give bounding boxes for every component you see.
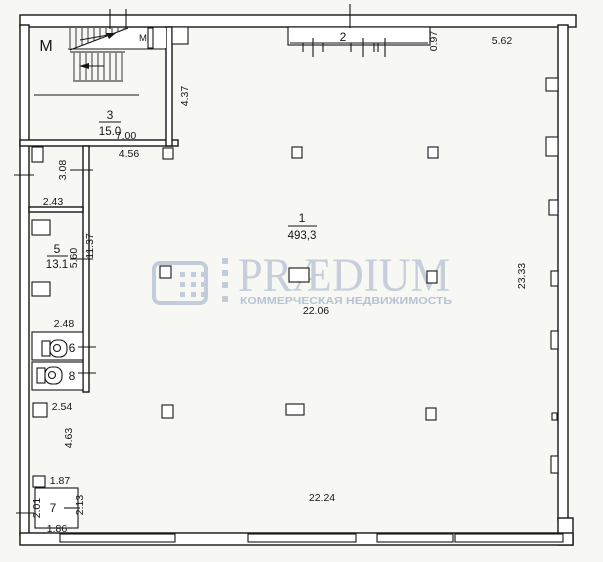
zone-2-strip: 2	[288, 27, 430, 57]
stair-label-m-small: M	[139, 33, 147, 44]
column-marker	[292, 147, 302, 158]
dim-0-97: 0.97	[428, 31, 440, 52]
watermark-tagline-bullet	[222, 296, 228, 302]
room-1-number: 1	[299, 211, 306, 225]
landing-divider	[148, 28, 153, 48]
window-segment	[377, 534, 453, 542]
bottom-windows	[60, 534, 563, 542]
dim-22-06: 22.06	[303, 305, 329, 317]
dim-5-60: 5.60	[68, 248, 80, 269]
right-wall-pilasters	[546, 78, 558, 473]
dim-11-37: 11.37	[84, 233, 96, 259]
pilaster	[33, 403, 47, 417]
pilaster	[551, 331, 558, 349]
room-7-number: 7	[50, 501, 57, 515]
left-wall	[20, 25, 29, 535]
room-5-number: 5	[54, 242, 61, 256]
floor-plan-page: M M 2	[0, 0, 603, 562]
pilaster	[546, 137, 558, 156]
column-marker	[286, 404, 304, 415]
window-segment	[455, 534, 563, 542]
column-marker	[426, 408, 436, 420]
room-5-area: 13.1	[46, 259, 68, 271]
dim-1-86: 1.86	[47, 523, 68, 535]
dim-4-37: 4.37	[179, 86, 191, 107]
toilet-icon	[42, 340, 67, 357]
column-marker	[428, 147, 438, 158]
right-wall	[558, 25, 568, 520]
dim-5-62: 5.62	[492, 35, 513, 47]
stairwell: M M	[34, 27, 188, 95]
shaft-box	[172, 27, 188, 44]
dim-2-13: 2.13	[74, 495, 86, 516]
pilaster	[551, 456, 558, 473]
stairwell-bottom-wall	[20, 140, 178, 146]
column-marker	[160, 266, 171, 278]
pilaster	[552, 413, 557, 420]
zone-2-number: 2	[340, 30, 347, 44]
dim-4-63: 4.63	[63, 428, 75, 449]
column-marker	[162, 405, 173, 418]
column-marker	[289, 268, 309, 282]
dim-2-01: 2.01	[31, 498, 43, 519]
dim-22-24: 22.24	[309, 492, 335, 504]
dim-2-48: 2.48	[54, 318, 75, 330]
top-wall	[20, 15, 576, 27]
dim-2-43: 2.43	[43, 196, 64, 208]
dim-2-54: 2.54	[52, 401, 73, 413]
watermark-tagline: КОММЕРЧЕСКАЯ НЕДВИЖИМОСТЬ	[240, 296, 452, 307]
window-segment	[248, 534, 356, 542]
pilaster	[549, 200, 558, 215]
column-marker	[427, 271, 437, 283]
pilaster	[546, 78, 558, 91]
watermark-brand: PRÆDIUM	[238, 249, 450, 302]
pilaster	[32, 220, 50, 235]
pilaster	[32, 147, 43, 162]
stairwell-right-wall	[166, 27, 172, 146]
pilaster	[33, 476, 45, 487]
toilet-icon	[37, 367, 62, 384]
dim-23-33: 23.33	[516, 263, 528, 289]
annex-partition	[83, 146, 89, 392]
dim-1-87: 1.87	[50, 475, 71, 487]
room-3-number: 3	[107, 108, 114, 122]
floor-plan-drawing: M M 2	[0, 0, 603, 562]
dim-7-00: 7.00	[116, 130, 137, 142]
room-6-number: 6	[69, 341, 76, 355]
dim-3-08: 3.08	[57, 160, 69, 181]
dim-4-56: 4.56	[119, 148, 140, 160]
room-1-area: 493,3	[288, 230, 317, 242]
stair-label-m-large: M	[39, 38, 52, 55]
column-marker	[163, 148, 173, 159]
window-segment	[60, 534, 175, 542]
zone-2-outline	[288, 27, 430, 45]
pilaster	[551, 271, 558, 286]
room-8-number: 8	[69, 369, 76, 383]
pilaster	[32, 282, 50, 296]
